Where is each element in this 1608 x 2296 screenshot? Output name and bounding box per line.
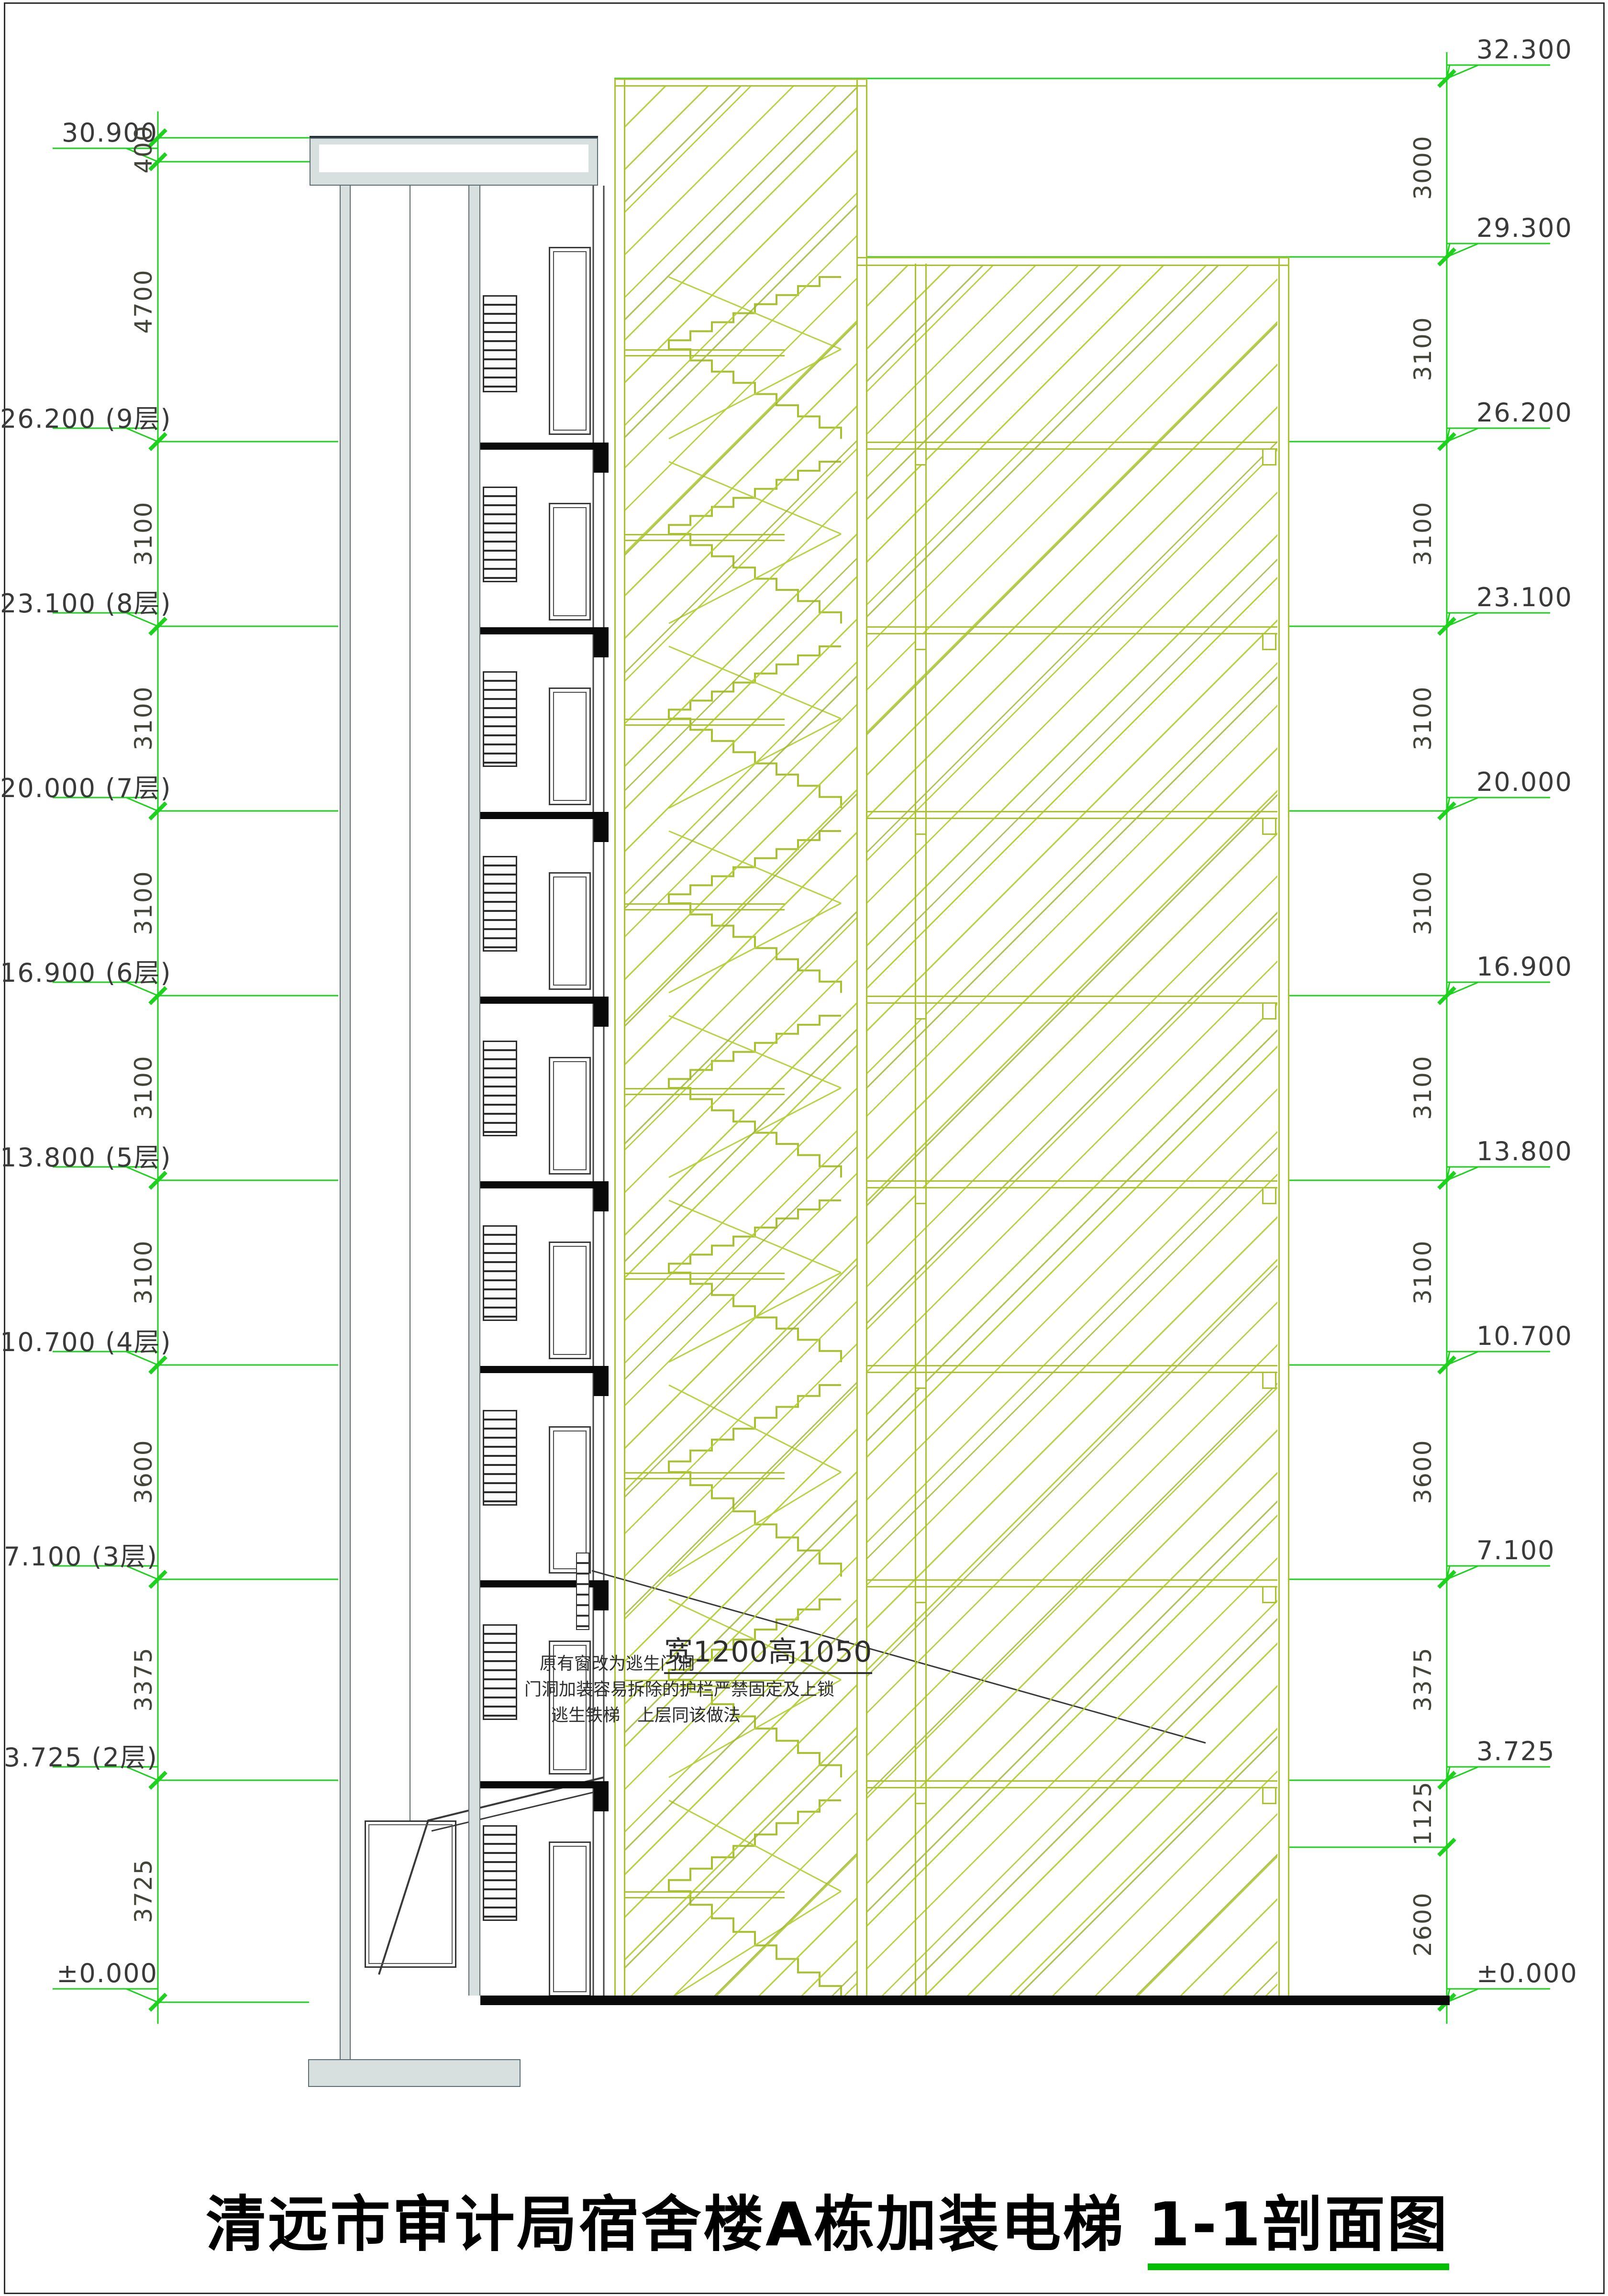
dimension-text: 3375: [1409, 1617, 1437, 1741]
elevation-label: 13.800: [1476, 1136, 1573, 1166]
main-floor-beam: [915, 1372, 927, 1389]
main-building-hatch: [867, 265, 1277, 2002]
dimension-text: 1125: [1409, 1751, 1437, 1875]
ground-line: [480, 1996, 1450, 2005]
main-floor-line: [867, 1787, 1277, 1788]
slab-end-pier: [594, 1788, 609, 1811]
stair-landing-line: [625, 1088, 785, 1089]
floor-slab: [480, 997, 609, 1004]
machine-louver-vent: [483, 295, 517, 392]
elevation-label: ±0.000: [1476, 1958, 1578, 1988]
dimension-text: 3725: [130, 1829, 157, 1953]
main-floor-beam: [1262, 633, 1276, 650]
escape-ladder: [576, 1553, 589, 1630]
main-floor-beam: [1262, 448, 1276, 466]
louver-vent: [483, 856, 517, 952]
elevation-label: 3.725 (2层): [0, 1736, 158, 1774]
floor-slab: [480, 1181, 609, 1188]
dimension-text: 3100: [1409, 1025, 1437, 1150]
main-floor-line: [867, 811, 1277, 812]
note-line2: 门洞加装容易拆除的护栏严禁固定及上锁: [524, 1675, 834, 1700]
elevation-flag: [1447, 1167, 1550, 1180]
building-wall-line: [915, 264, 916, 2002]
building-wall-line: [856, 78, 858, 2002]
elevation-flag: [1447, 428, 1550, 442]
escape-door-opening: [549, 247, 591, 435]
main-floor-beam: [1262, 818, 1276, 835]
elevation-flag: [1447, 798, 1550, 811]
main-floor-beam: [1262, 1787, 1276, 1804]
main-roof-line: [856, 265, 1288, 266]
main-floor-beam: [915, 1002, 927, 1020]
elevation-label: 7.100 (3层): [0, 1535, 158, 1573]
escape-door-opening: [549, 1057, 591, 1175]
elevator-car-inner: [368, 1824, 453, 1964]
main-floor-line: [867, 1586, 1277, 1587]
stair-landing-line: [625, 909, 785, 910]
main-floor-line: [867, 818, 1277, 819]
title-section-label: 1-1剖面图: [1148, 2189, 1449, 2270]
main-floor-beam: [1262, 1586, 1276, 1603]
floor-slab: [480, 1366, 609, 1373]
main-floor-beam: [1262, 1372, 1276, 1389]
dimension-text: 3375: [130, 1617, 157, 1741]
slab-end-pier: [594, 1373, 609, 1396]
dimension-text: 3600: [130, 1409, 157, 1534]
floor-slab: [480, 812, 609, 819]
dimension-text: 3100: [1409, 656, 1437, 780]
elevation-label: 26.200: [1476, 398, 1573, 428]
elevation-label: 23.100: [1476, 582, 1573, 612]
note-line3: 逃生铁梯 上层同该做法: [551, 1701, 741, 1726]
elevation-flag: [1447, 982, 1550, 996]
main-floor-beam: [915, 1787, 927, 1804]
building-wall-line: [866, 78, 867, 2002]
main-floor-line: [867, 626, 1277, 628]
elevation-label: 26.200 (9层): [0, 398, 158, 435]
elevation-flag: [1447, 65, 1550, 78]
elevation-label: 3.725: [1476, 1736, 1555, 1766]
elevation-label: 32.300: [1476, 34, 1573, 65]
elevation-flag: [1447, 1767, 1550, 1780]
main-floor-line: [867, 1365, 1277, 1366]
elevation-flag: [1447, 244, 1550, 257]
dimension-text: 2600: [1409, 1862, 1437, 1986]
elevation-label: 29.300: [1476, 213, 1573, 243]
dimension-text: 3100: [1409, 841, 1437, 965]
stair-landing-line: [625, 903, 785, 905]
main-floor-beam: [1262, 1187, 1276, 1204]
louver-vent: [483, 1624, 517, 1720]
stair-landing-line: [625, 1891, 785, 1893]
louver-vent: [483, 1825, 517, 1921]
main-floor-line: [867, 633, 1277, 634]
elevation-flag: [1447, 1566, 1550, 1579]
escape-door-opening: [549, 1841, 591, 1997]
dimension-text: 3100: [130, 841, 157, 965]
dimension-text: 3100: [130, 1025, 157, 1150]
main-floor-line: [867, 1579, 1277, 1581]
main-floor-beam: [915, 1586, 927, 1603]
elevation-flag: [1447, 613, 1550, 626]
main-floor-line: [867, 448, 1277, 450]
machine-roof-top-line: [310, 136, 598, 138]
louver-vent: [483, 487, 517, 582]
building-wall-line: [925, 264, 927, 2002]
building-wall-line: [1278, 257, 1280, 2002]
dimension-text: 3100: [1409, 1210, 1437, 1334]
stair-landing-line: [625, 1273, 785, 1274]
escape-door-opening: [549, 688, 591, 805]
louver-vent: [483, 1041, 517, 1136]
stair-landing-line: [625, 355, 785, 356]
elevation-label: 7.100: [1476, 1535, 1555, 1565]
slab-end-pier: [594, 1188, 609, 1211]
slab-end-pier: [594, 450, 609, 473]
louver-vent: [483, 1225, 517, 1321]
main-floor-line: [867, 1780, 1277, 1782]
elevation-flag: [53, 1989, 158, 2002]
dimension-text: 3100: [1409, 471, 1437, 596]
stair-landing-line: [625, 349, 785, 351]
dimension-text: 4700: [130, 239, 157, 364]
slab-end-pier: [594, 1004, 609, 1027]
stair-landing-line: [625, 1478, 785, 1479]
stair-landing-line: [625, 719, 785, 720]
main-floor-line: [867, 1002, 1277, 1004]
stair-landing-line: [625, 724, 785, 726]
entrance-canopy-edge: [432, 1790, 604, 1831]
stair-landing-line: [625, 1094, 785, 1095]
shaft-right-wall: [468, 186, 480, 1996]
elevation-label: 16.900: [1476, 952, 1573, 982]
elevation-label: ±0.000: [0, 1958, 158, 1988]
main-floor-beam: [915, 1187, 927, 1204]
elevation-flag: [1447, 1989, 1550, 2002]
louver-vent: [483, 671, 517, 767]
escape-door-opening: [549, 872, 591, 990]
dimension-text: 3000: [1409, 105, 1437, 230]
main-floor-beam: [915, 448, 927, 466]
dimension-text: 3600: [1409, 1409, 1437, 1534]
dimension-text: 3100: [130, 1210, 157, 1334]
main-roof-line: [856, 257, 1288, 258]
floor-slab: [480, 443, 609, 450]
main-floor-beam: [915, 633, 927, 650]
main-floor-line: [867, 442, 1277, 443]
main-floor-line: [867, 996, 1277, 997]
stair-landing-line: [625, 1472, 785, 1474]
floor-slab: [480, 627, 609, 634]
stair-landing-line: [625, 540, 785, 541]
note-line1-large: 宽1200高1050: [664, 1629, 872, 1674]
dimension-text: 3100: [1409, 287, 1437, 411]
slab-end-pier: [594, 819, 609, 842]
main-floor-line: [867, 1187, 1277, 1188]
dimension-text: 3100: [130, 471, 157, 596]
stair-landing-line: [625, 1278, 785, 1280]
escape-door-opening: [549, 1242, 591, 1359]
stair-landing-line: [625, 1897, 785, 1898]
dimension-text: 3100: [130, 656, 157, 780]
main-floor-beam: [915, 818, 927, 835]
section-drawing-canvas: 30.90026.200 (9层)23.100 (8层)20.000 (7层)1…: [0, 0, 1608, 2296]
slab-end-pier: [594, 1587, 609, 1610]
louver-vent: [483, 1410, 517, 1506]
main-floor-line: [867, 1372, 1277, 1373]
main-floor-line: [867, 1180, 1277, 1182]
floor-slab: [480, 1781, 609, 1788]
tower-roof-line: [614, 78, 866, 80]
dimension-text: 400: [130, 87, 157, 211]
escape-door-opening: [549, 503, 591, 621]
escape-door-opening: [549, 1426, 591, 1574]
elevation-label: 10.700: [1476, 1321, 1573, 1351]
main-floor-beam: [1262, 1002, 1276, 1020]
elevation-label: 20.000: [1476, 767, 1573, 797]
drawing-title: 清远市审计局宿舍楼A栋加装电梯 1-1剖面图: [206, 2176, 1449, 2263]
shaft-left-wall: [340, 186, 351, 2059]
building-wall-line: [1288, 257, 1289, 2002]
pit-slab: [308, 2059, 521, 2087]
stair-landing-line: [625, 534, 785, 535]
title-text: 清远市审计局宿舍楼A栋加装电梯: [206, 2189, 1148, 2260]
machine-roof-cap-void: [319, 144, 588, 172]
elevation-flag: [1447, 1352, 1550, 1365]
slab-end-pier: [594, 634, 609, 657]
tower-roof-line: [614, 85, 866, 87]
